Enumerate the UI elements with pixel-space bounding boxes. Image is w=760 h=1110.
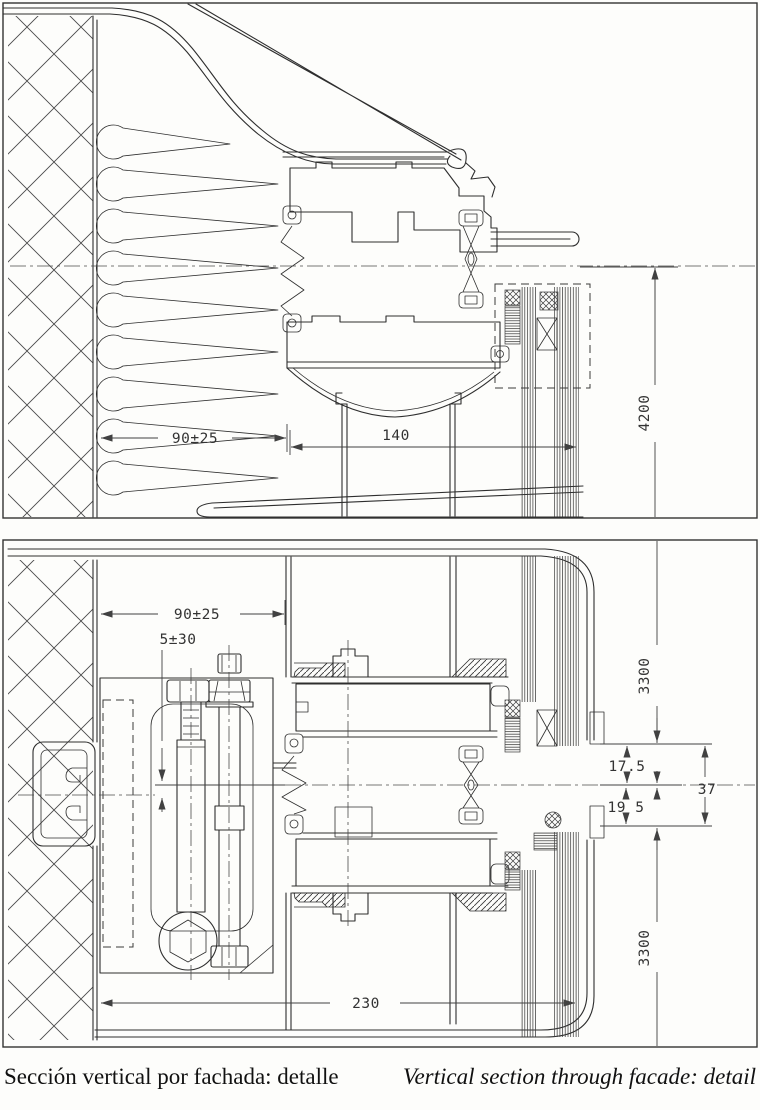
dim-anchor-depth: 230 — [352, 996, 380, 1012]
dim-adjustment: 5±30 — [160, 632, 197, 648]
glazing-bottom — [505, 556, 604, 1037]
transom-profiles — [273, 640, 509, 930]
bottom-detail: 90±25 5±30 3300 17.5 19 5 37 3300 — [3, 540, 757, 1047]
drawing-sheet: 90±25 140 4200 — [0, 0, 760, 1110]
angle-cleat — [294, 663, 345, 677]
dim-total-offset: 37 — [698, 782, 716, 798]
glass-pane-outer — [554, 287, 579, 517]
bottom-panel-border — [3, 540, 757, 1047]
top-panel-border — [3, 3, 757, 518]
caption-english: Vertical section through facade: detail — [403, 1064, 756, 1090]
drip-tongue — [491, 232, 579, 246]
glass-pane-inner — [520, 287, 536, 517]
hinge-pin — [159, 912, 217, 970]
caption: Sección vertical por fachada: detalle Ve… — [4, 1064, 756, 1090]
dimensions-bottom: 90±25 5±30 3300 17.5 19 5 37 3300 — [101, 541, 716, 1046]
dim-lower-offset: 19 5 — [608, 800, 645, 816]
wall-hatch-bottom — [8, 560, 93, 1040]
dim-insulation-width-top: 90±25 — [172, 431, 218, 447]
glazing-top — [495, 284, 590, 517]
dim-mullion-depth: 140 — [382, 428, 410, 444]
dim-lower-module-height: 3300 — [637, 930, 653, 967]
hidden-bracket-dashed — [103, 700, 133, 947]
dim-insulation-width-bottom: 90±25 — [174, 607, 220, 623]
bracket-assembly — [100, 645, 273, 980]
top-detail: 90±25 140 4200 — [3, 3, 757, 518]
dim-upper-offset: 17.5 — [609, 759, 646, 775]
wall-hatch-top — [8, 16, 93, 517]
facade-section-drawing: 90±25 140 4200 — [0, 0, 760, 1110]
dimensions-top: 90±25 140 4200 — [101, 267, 678, 517]
vent-frame-outline — [8, 549, 594, 1037]
thermal-break — [459, 210, 483, 308]
caption-spanish: Sección vertical por fachada: detalle — [4, 1064, 339, 1090]
dim-upper-module-height: 3300 — [637, 658, 653, 695]
dim-module-height-top: 4200 — [637, 395, 653, 432]
thermal-gasket-zigzag — [281, 226, 304, 316]
mullion-legs — [342, 404, 455, 516]
